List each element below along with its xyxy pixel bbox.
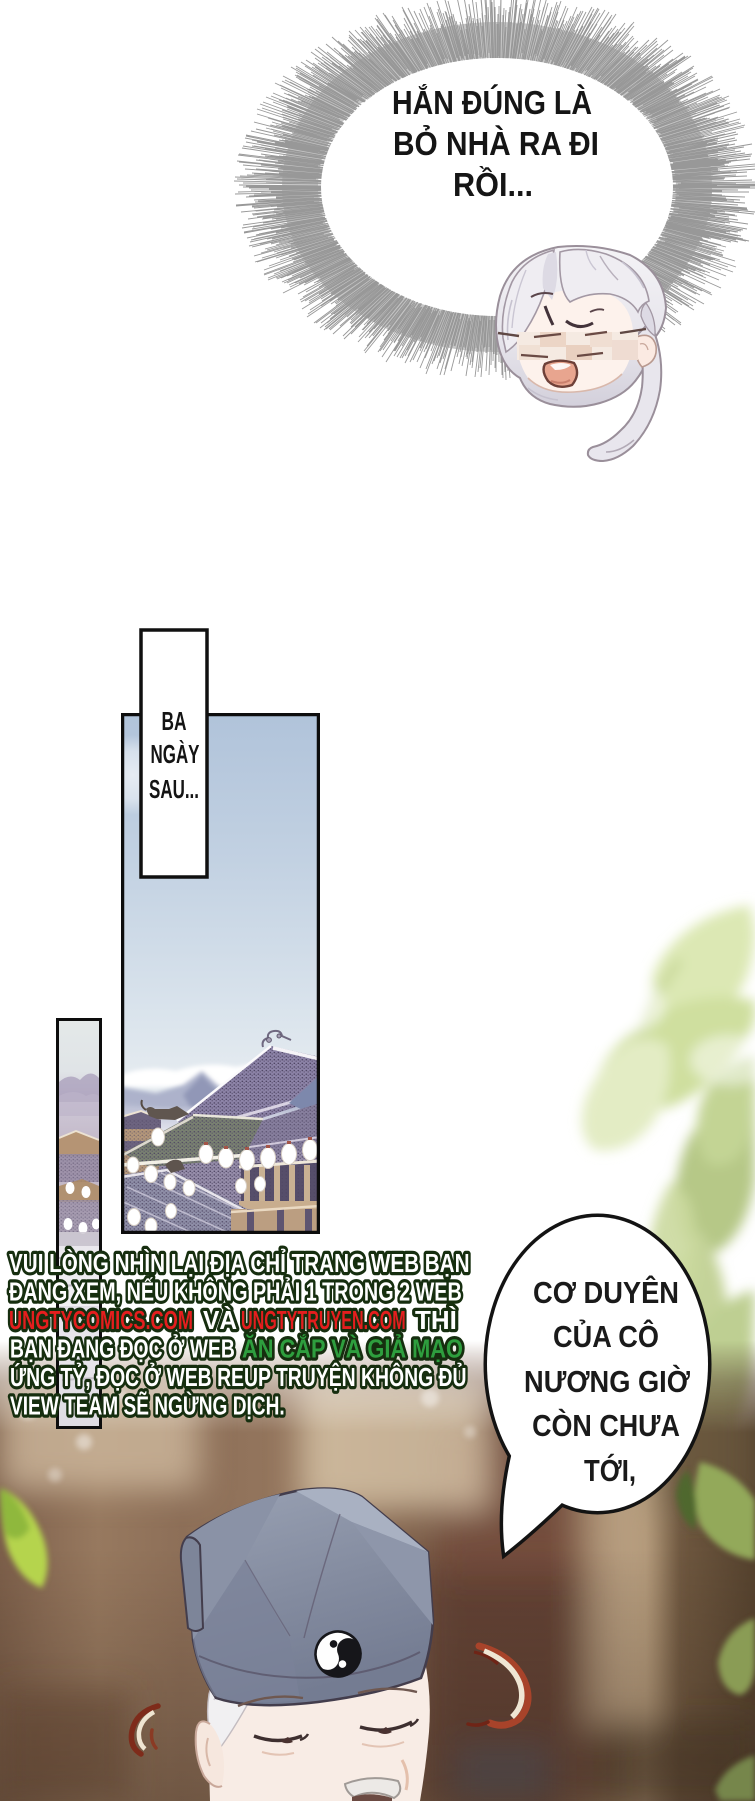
svg-text:ĐANG XEM, NẾU KHÔNG PHẢI 1 TRO: ĐANG XEM, NẾU KHÔNG PHẢI 1 TRONG 2 WEB xyxy=(9,1275,462,1307)
svg-text:BA: BA xyxy=(161,706,186,735)
svg-text:NGÀY: NGÀY xyxy=(151,739,200,769)
svg-text:ĂN CẮP VÀ GIẢ MẠO: ĂN CẮP VÀ GIẢ MẠO xyxy=(242,1333,463,1364)
svg-text:UNGTYTRUYEN.COM: UNGTYTRUYEN.COM xyxy=(241,1305,406,1335)
svg-text:BỎ NHÀ RA ĐI: BỎ NHÀ RA ĐI xyxy=(393,125,599,163)
svg-text:CÒN CHƯA: CÒN CHƯA xyxy=(532,1407,680,1443)
svg-text:NƯƠNG GIỜ: NƯƠNG GIỜ xyxy=(524,1363,690,1399)
svg-text:VÀ: VÀ xyxy=(203,1305,237,1335)
svg-text:BẠN ĐANG ĐỌC Ở WEB: BẠN ĐANG ĐỌC Ở WEB xyxy=(10,1334,235,1364)
svg-text:VUI LÒNG NHÌN LẠI ĐỊA CHỈ TRAN: VUI LÒNG NHÌN LẠI ĐỊA CHỈ TRANG WEB BẠN xyxy=(9,1247,469,1278)
svg-text:VIEW TEAM SẼ NGỪNG DỊCH.: VIEW TEAM SẼ NGỪNG DỊCH. xyxy=(10,1391,285,1421)
svg-text:CƠ DUYÊN: CƠ DUYÊN xyxy=(533,1274,679,1310)
svg-text:TỚI,: TỚI, xyxy=(584,1454,636,1489)
svg-text:ỨNG TỶ, ĐỌC Ở WEB REUP TRUYỆN: ỨNG TỶ, ĐỌC Ở WEB REUP TRUYỆN KHÔNG ĐỦ xyxy=(10,1362,467,1391)
svg-text:HẮN ĐÚNG LÀ: HẮN ĐÚNG LÀ xyxy=(392,83,592,121)
svg-text:RỒI...: RỒI... xyxy=(453,166,533,203)
svg-text:UNGTYCOMICS.COM: UNGTYCOMICS.COM xyxy=(9,1306,193,1335)
svg-text:SAU...: SAU... xyxy=(149,774,199,804)
svg-text:THÌ: THÌ xyxy=(415,1305,457,1335)
svg-text:CỦA CÔ: CỦA CÔ xyxy=(553,1318,659,1354)
